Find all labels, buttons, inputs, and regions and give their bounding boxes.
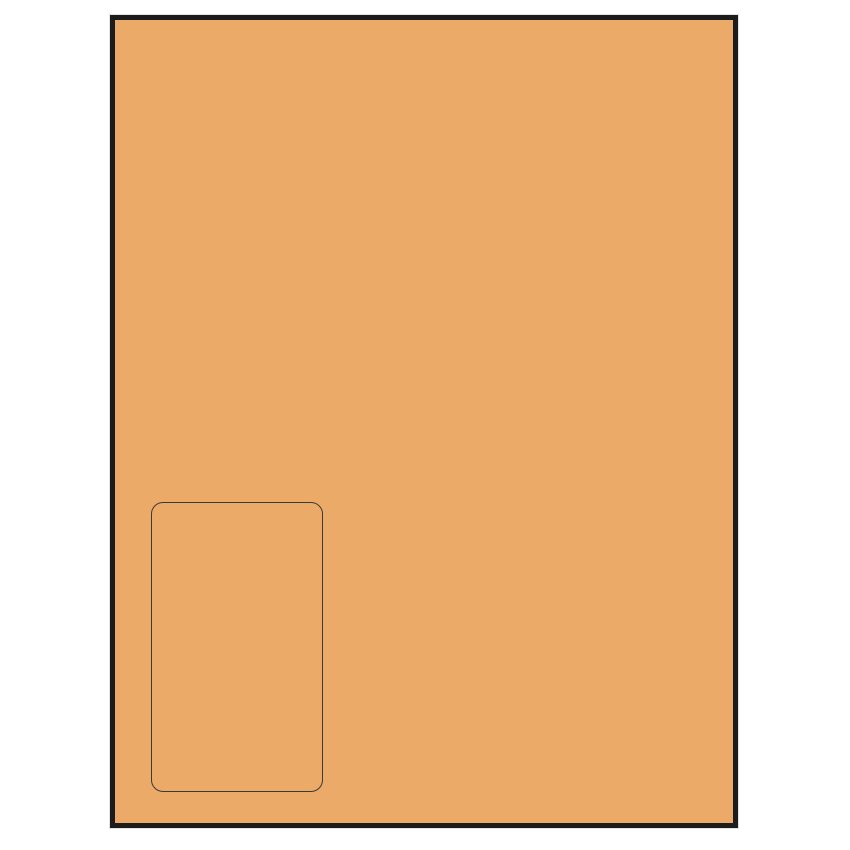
page-background [0,0,850,850]
label-sheet [110,15,738,828]
label-outline[interactable] [151,502,323,792]
